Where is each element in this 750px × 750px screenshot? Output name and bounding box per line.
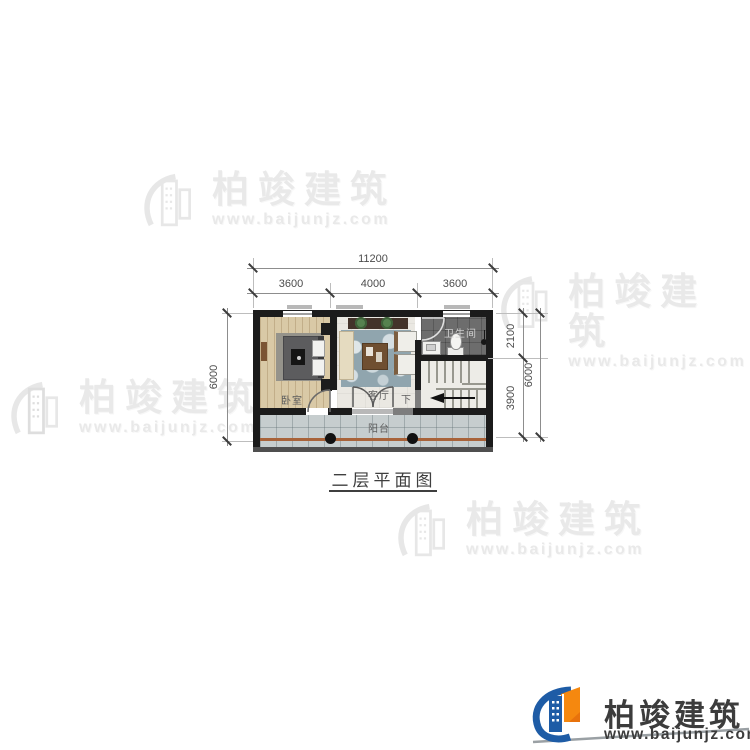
- logo-blue-building: [549, 696, 562, 732]
- plan-title-underline: [329, 490, 437, 492]
- extension-line: [488, 358, 548, 359]
- bathroom-label: 卫生间: [444, 325, 477, 340]
- dim-right-top: 2100: [504, 306, 518, 366]
- dim-segment: 3600: [425, 277, 485, 291]
- extension-line: [253, 258, 254, 308]
- door-swings-overlay: [0, 0, 750, 750]
- bedroom-door-arc: [308, 390, 330, 412]
- plan-title: 二层平面图: [330, 466, 438, 491]
- balcony-label: 阳台: [368, 420, 390, 435]
- floor-plan-page: 柏竣建筑 www.baijunjz.com 柏竣建筑 www.baijunjz.…: [0, 0, 750, 750]
- dimension-line-width-segments: [247, 293, 499, 294]
- dim-segment: 3600: [261, 277, 321, 291]
- company-logo-url: www.baijunjz.com: [604, 726, 750, 744]
- dimension-line-left-height: [227, 308, 228, 446]
- dimension-line-right-outer: [540, 308, 541, 442]
- bathroom-door-arc: [422, 318, 444, 340]
- dim-left-total: 6000: [207, 347, 221, 407]
- stairs-down-label: 下: [401, 391, 412, 406]
- dim-right-bottom: 3900: [504, 368, 518, 428]
- dim-segment: 4000: [343, 277, 403, 291]
- bedroom-label: 卧室: [281, 392, 303, 407]
- dim-right-total: 6000: [522, 345, 536, 405]
- living-room-label: 客厅: [368, 387, 390, 402]
- dimension-line-total-width: [247, 268, 499, 269]
- dim-total-width: 11200: [343, 252, 403, 266]
